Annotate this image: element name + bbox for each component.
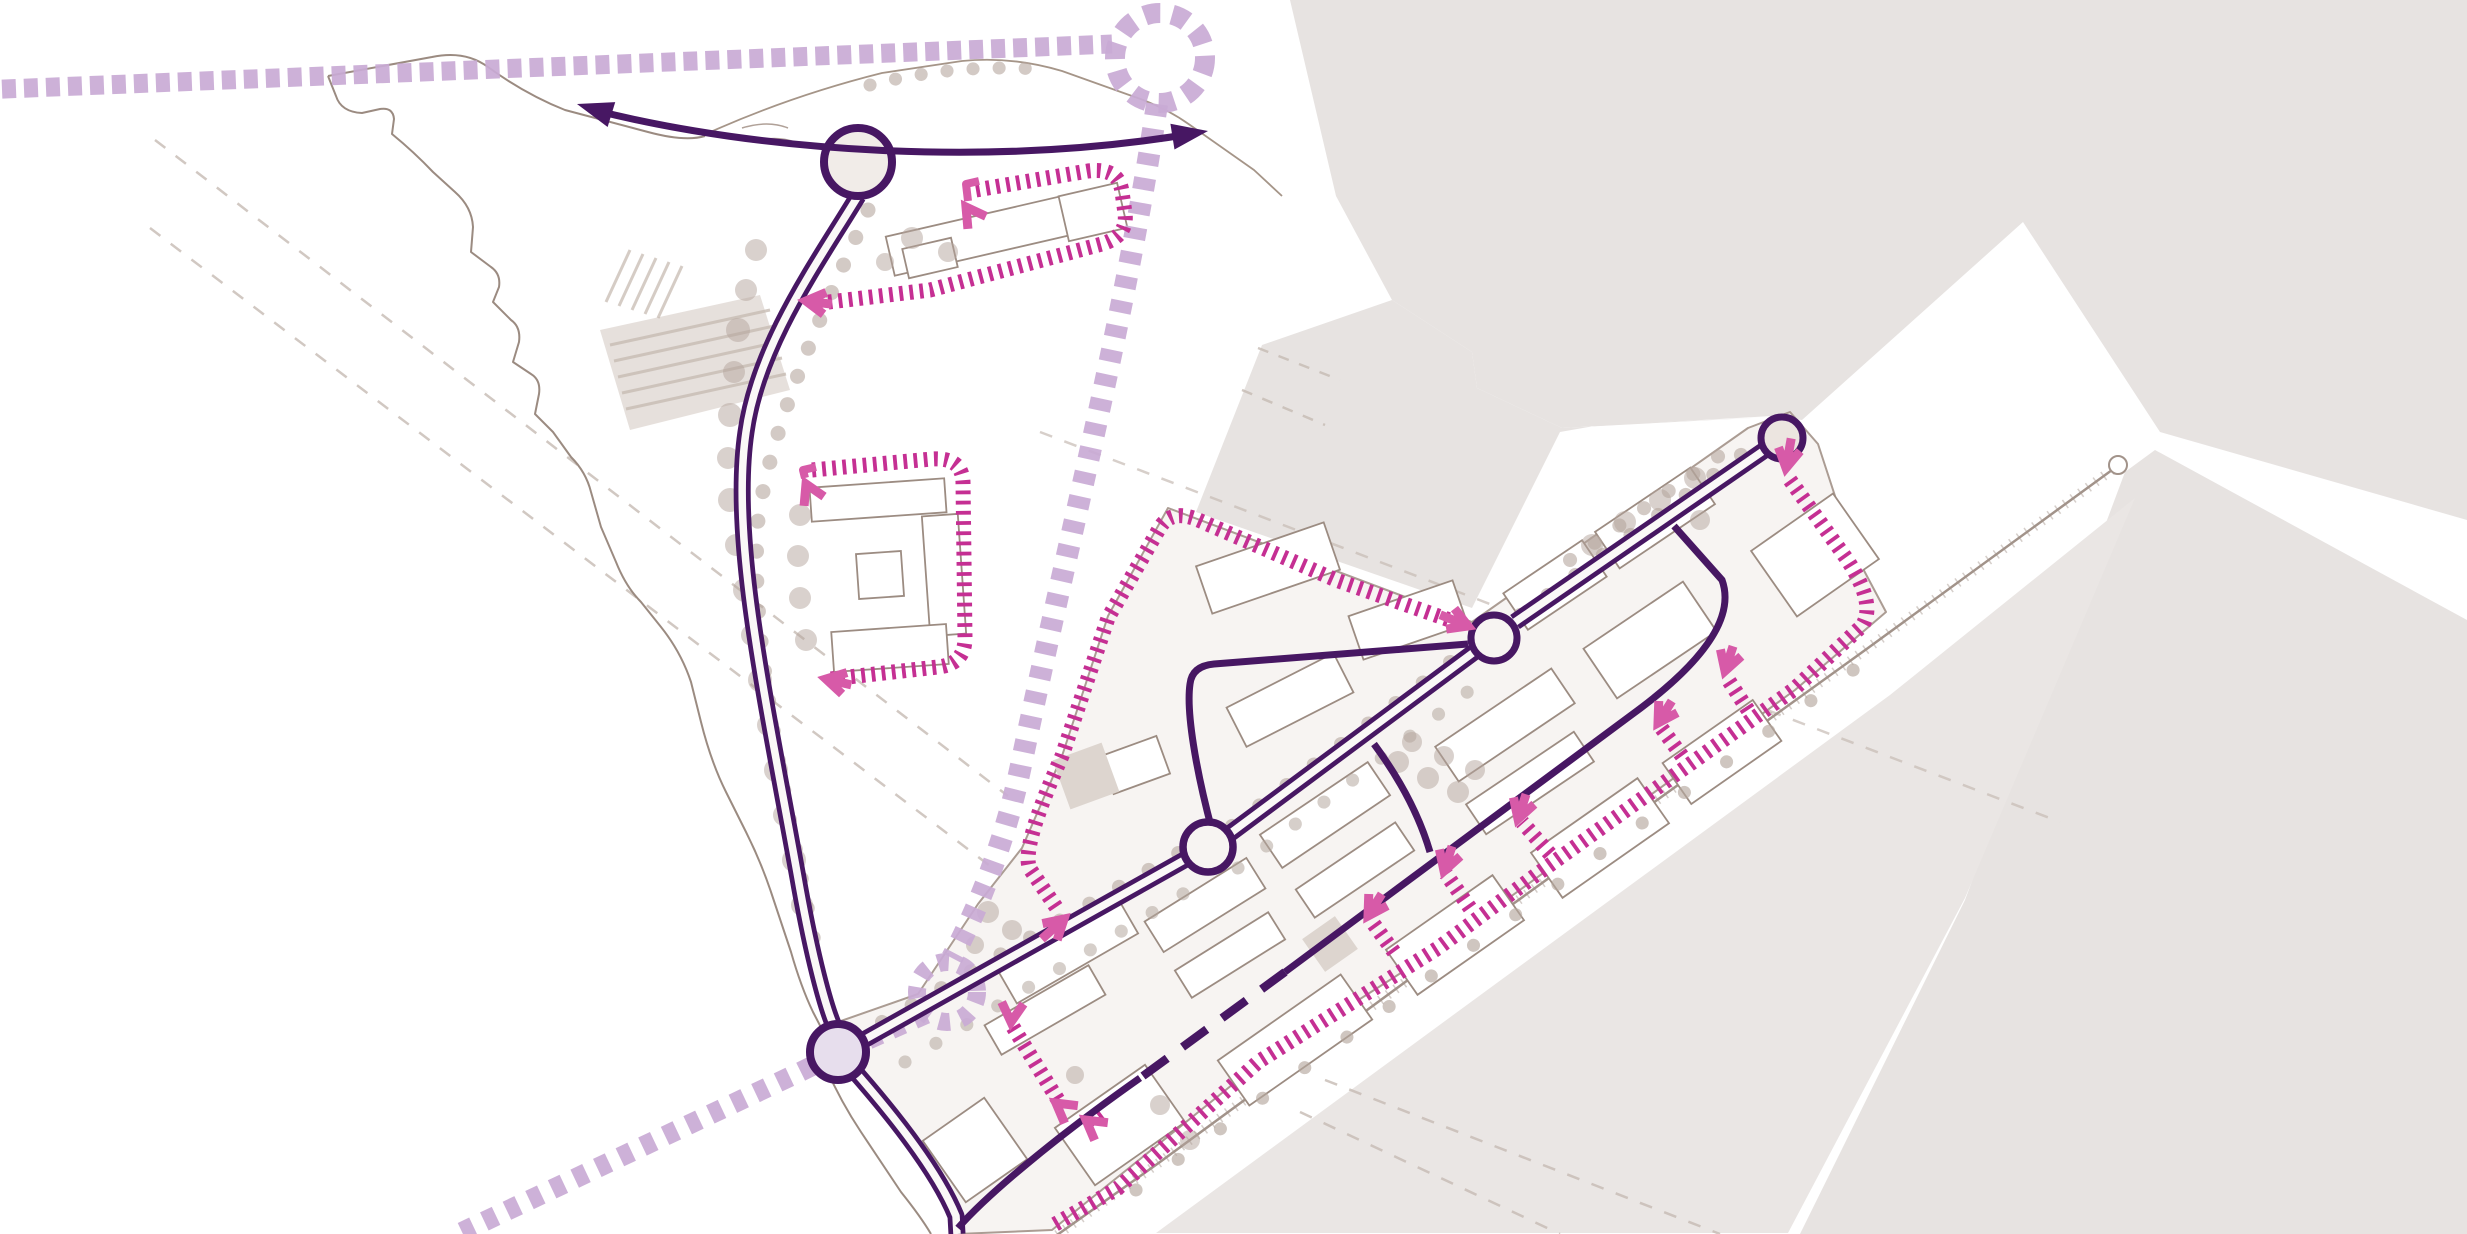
tree-cluster	[1402, 732, 1422, 752]
tree-cluster	[718, 403, 742, 427]
tree-cluster	[876, 253, 894, 271]
tree-cluster	[901, 227, 923, 249]
building	[856, 551, 904, 599]
map-canvas	[0, 0, 2467, 1234]
masterplan-circulation-diagram	[0, 0, 2467, 1234]
tree-cluster	[789, 587, 811, 609]
tree-cluster	[1465, 760, 1485, 780]
tree-cluster	[1434, 746, 1454, 766]
tree-cluster	[789, 504, 811, 526]
building	[831, 624, 949, 672]
tree-cluster	[938, 242, 958, 262]
tree-cluster	[1417, 767, 1439, 789]
tree-cluster	[1002, 920, 1022, 940]
roundabout-north	[824, 128, 892, 196]
tree-cluster	[1581, 534, 1603, 556]
roundabout-southwest	[810, 1024, 866, 1080]
tree-cluster	[795, 629, 817, 651]
tree-cluster	[745, 239, 767, 261]
tree-cluster	[723, 361, 745, 383]
tree-cluster	[1180, 1130, 1200, 1150]
roundabout-northeast	[1471, 615, 1517, 661]
tree-cluster	[1690, 510, 1710, 530]
tree-cluster	[1150, 1095, 1170, 1115]
quay-turning-circle	[2109, 456, 2127, 474]
tree-cluster	[787, 545, 809, 567]
roundabout-center	[1183, 822, 1233, 872]
tree-cluster	[1614, 511, 1636, 533]
tree-cluster	[735, 279, 757, 301]
tree-cluster	[726, 318, 750, 342]
tree-cluster	[1447, 781, 1469, 803]
tree-cluster	[1066, 1066, 1084, 1084]
